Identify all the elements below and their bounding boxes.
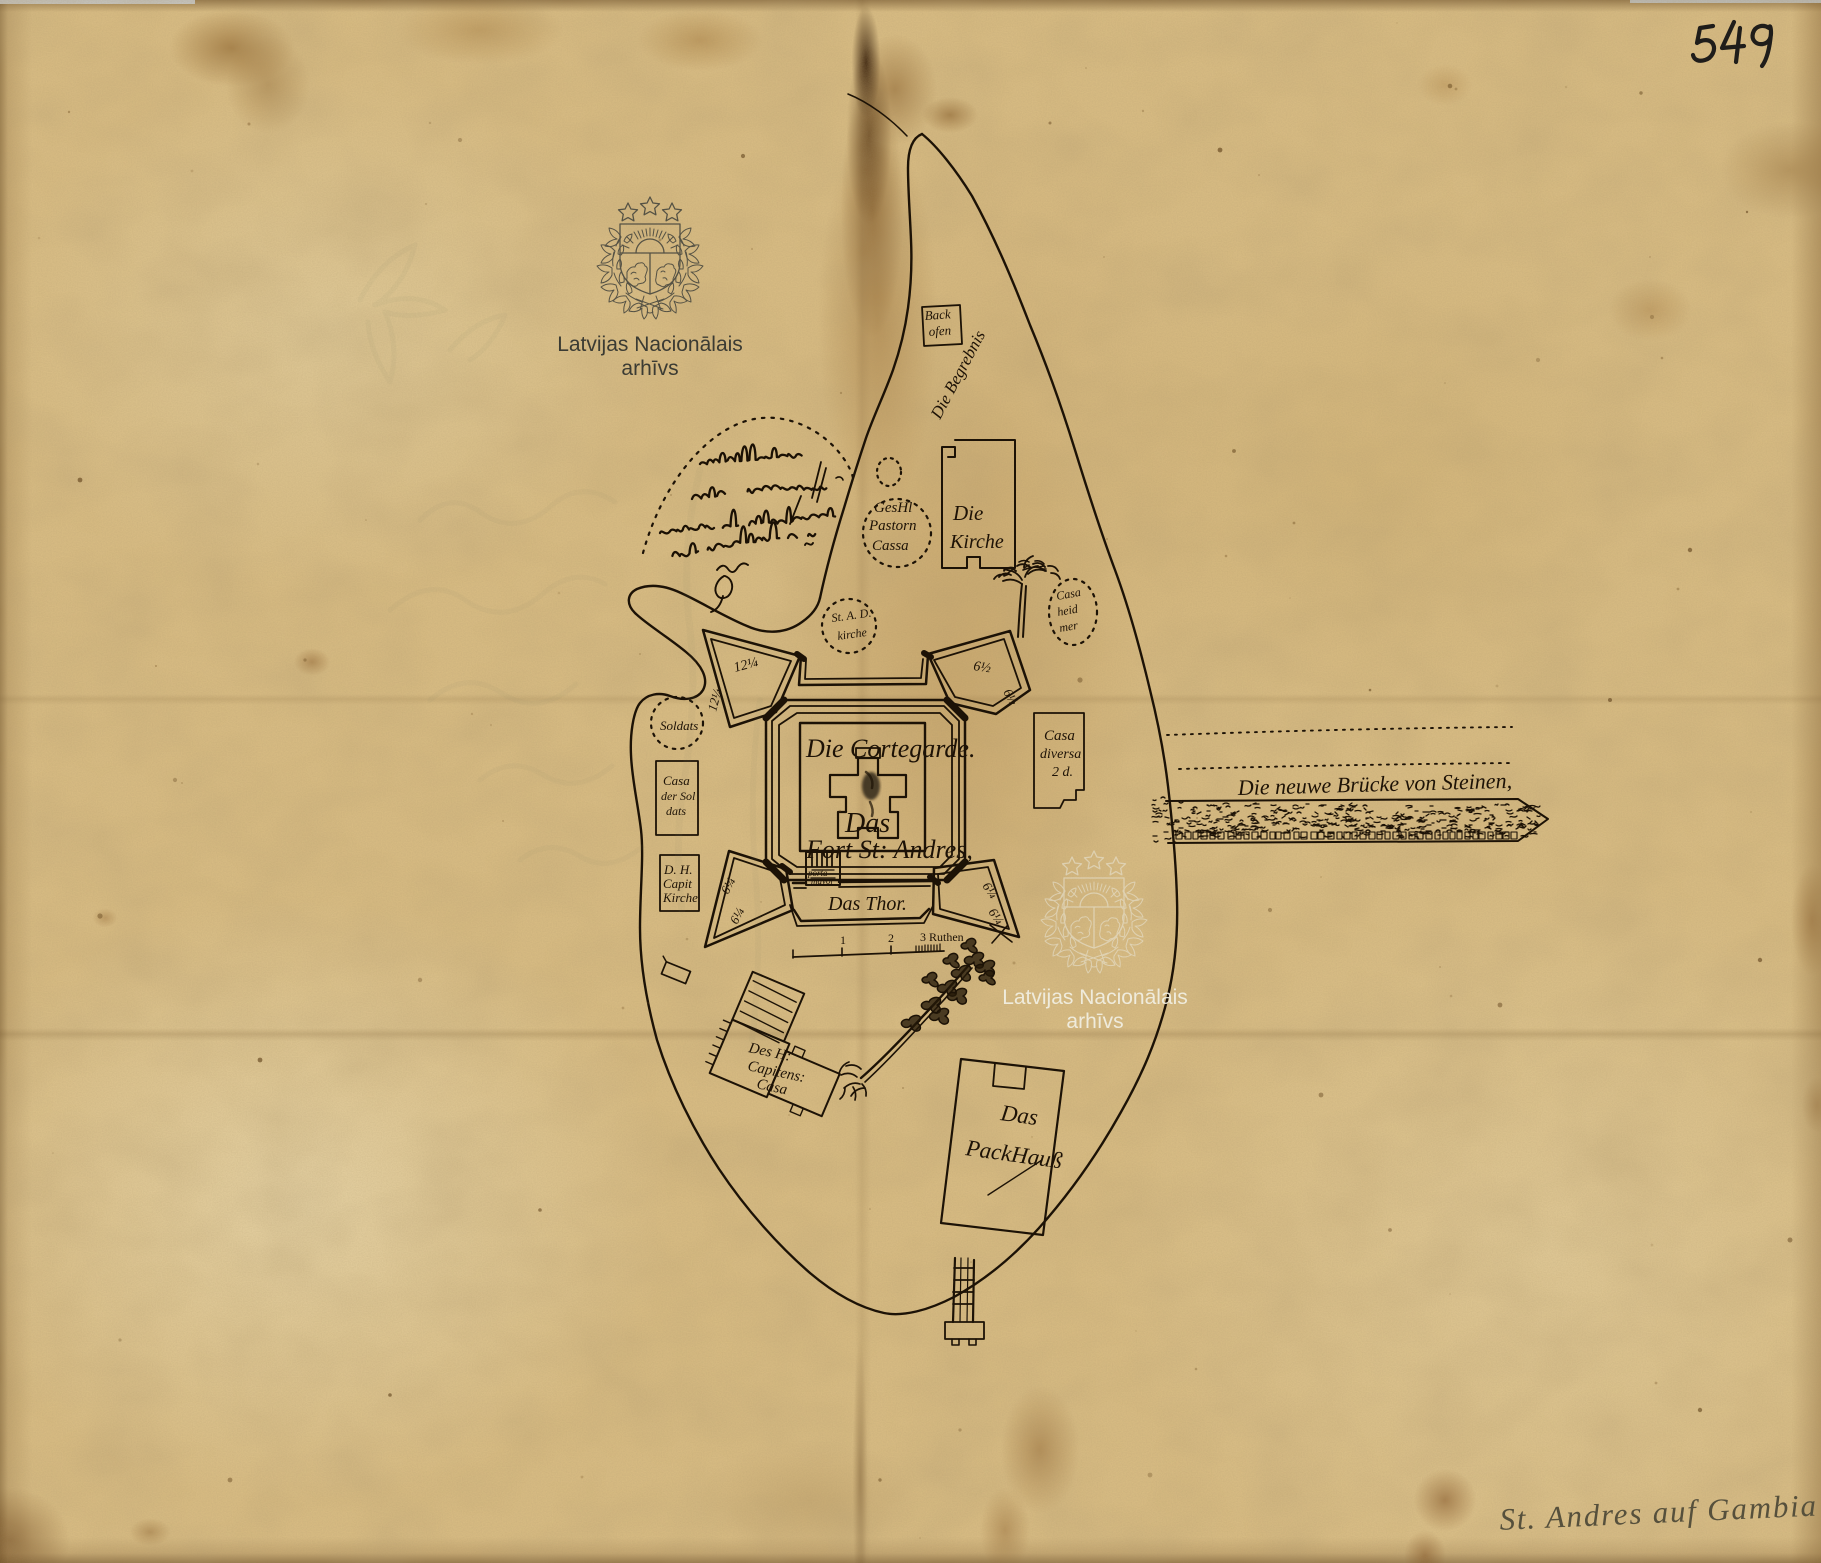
svg-text:3 Ruthen: 3 Ruthen (920, 930, 964, 944)
svg-text:2 d.: 2 d. (1052, 765, 1073, 780)
svg-text:6¼: 6¼ (717, 875, 738, 897)
svg-text:12¼: 12¼ (704, 687, 724, 713)
svg-text:PackHauß: PackHauß (963, 1135, 1064, 1173)
svg-text:heid: heid (1056, 601, 1080, 619)
svg-text:der Sol: der Sol (661, 789, 696, 803)
svg-text:GesHl: GesHl (874, 500, 912, 516)
svg-text:mayor: mayor (811, 876, 834, 886)
svg-text:diversa: diversa (1040, 747, 1081, 762)
svg-text:Casa: Casa (663, 773, 690, 788)
svg-text:D. H.: D. H. (663, 862, 693, 877)
svg-text:Back: Back (924, 306, 951, 323)
svg-text:Casa: Casa (1044, 728, 1075, 744)
svg-text:6¼: 6¼ (980, 879, 1002, 901)
svg-text:Casa: Casa (1055, 585, 1082, 603)
svg-text:mer: mer (1058, 618, 1079, 635)
svg-text:Kirche: Kirche (949, 531, 1004, 553)
svg-text:ofen: ofen (928, 322, 951, 339)
svg-text:2: 2 (888, 931, 894, 945)
svg-text:12¼: 12¼ (732, 655, 760, 676)
svg-text:St. A. D.: St. A. D. (830, 606, 872, 625)
svg-text:Cassa: Cassa (872, 538, 909, 554)
svg-text:Die neuwe Brücke von Steinen,: Die neuwe Brücke von Steinen, (1236, 768, 1512, 800)
svg-text:6½: 6½ (1000, 686, 1021, 708)
svg-text:Capit: Capit (663, 876, 692, 891)
svg-text:Kirche: Kirche (662, 890, 698, 905)
svg-text:St. Andres auf Gambia: St. Andres auf Gambia (1499, 1487, 1819, 1536)
svg-text:1: 1 (840, 933, 846, 947)
svg-text:6¼: 6¼ (986, 905, 1008, 927)
svg-text:Die Cortegarde.: Die Cortegarde. (805, 734, 975, 763)
svg-text:Pastorn: Pastorn (868, 518, 917, 534)
svg-text:6½: 6½ (972, 659, 992, 676)
svg-text:Soldats: Soldats (660, 718, 698, 733)
svg-text:Das Thor.: Das Thor. (827, 893, 907, 915)
svg-text:6¼: 6¼ (726, 905, 747, 927)
svg-text:Die Begrebnis: Die Begrebnis (926, 327, 989, 423)
svg-text:kirche: kirche (836, 625, 868, 643)
svg-text:dats: dats (666, 804, 686, 818)
svg-text:Das: Das (998, 1100, 1039, 1130)
svg-text:Die: Die (952, 501, 983, 525)
svg-text:Fort St: Andres,: Fort St: Andres, (805, 835, 973, 864)
